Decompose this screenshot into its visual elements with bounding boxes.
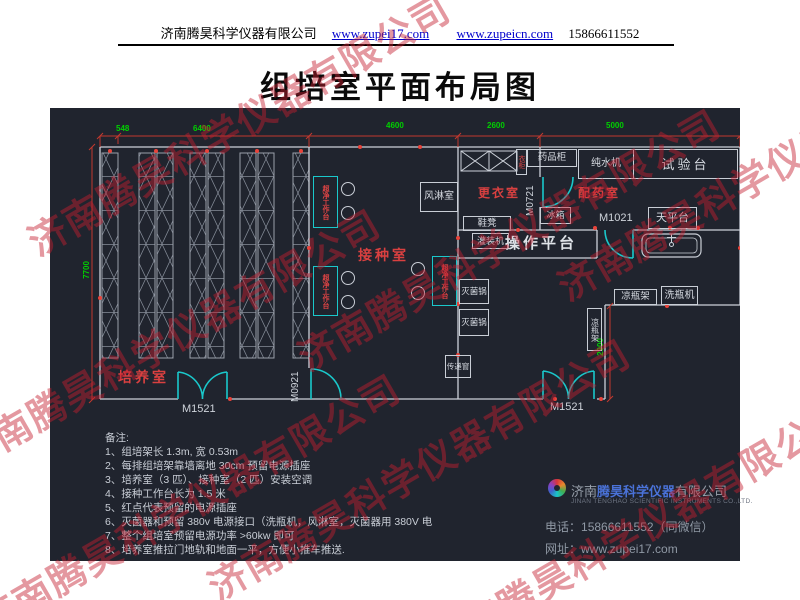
company-logo-icon [548, 479, 566, 497]
web-label: 网址： [545, 542, 581, 556]
notes-title: 备注: [105, 433, 129, 444]
door-label-m0721: M0721 [526, 174, 536, 216]
note-item-7: 7、整个组培室预留电源功率 >60kw 即可 [105, 531, 294, 542]
wardrobe-box: 衣柜 [516, 149, 527, 175]
bottle-rack-box-h: 凉瓶架 [614, 289, 657, 305]
fridge-box: 冰箱 [540, 207, 571, 224]
clean-bench-label: 超净工作台 [441, 264, 448, 299]
clean-bench-label: 超净工作台 [322, 274, 329, 309]
phone-label: 电话： [545, 520, 581, 534]
header-phone: 15866611552 [568, 26, 639, 41]
clean-bench-label: 超净工作台 [322, 185, 329, 220]
brand-suffix: 有限公司 [675, 484, 727, 499]
room-label-changing: 更衣室 [478, 187, 520, 199]
page: 济南腾昊科学仪器有限公司 www.zupei17.com www.zupeicn… [0, 0, 800, 600]
note-item-6: 6、灭菌器和预留 380v 电源接口（洗瓶机，风淋室，灭菌器用 380V 电 [105, 517, 432, 528]
web-value: www.zupei17.com [581, 542, 678, 556]
floorplan-canvas: 548 6400 4600 2600 5000 7700 2900 培养室 接种… [50, 108, 740, 561]
test-bench-label: 试验台 [633, 150, 737, 178]
bench-counter-box: 纯水机 试验台 [578, 149, 738, 179]
dim-top-2600: 2600 [487, 122, 505, 130]
stool [341, 206, 355, 220]
brand-mid: 科学仪器 [623, 484, 675, 499]
balance-table-box: 天平台 [648, 207, 697, 229]
door-m0721 [543, 177, 573, 207]
note-item-3: 3、培养室（3 匹）、接种室（2 匹）安装空调 [105, 475, 312, 486]
sink [642, 234, 701, 257]
door-m1521-wash [543, 371, 594, 399]
water-purifier-label: 纯水机 [579, 159, 633, 169]
stool [341, 271, 355, 285]
page-title: 组培室平面布局图 [0, 62, 800, 107]
clean-bench-3: 超净工作台 [432, 256, 457, 306]
faucet-icon [667, 234, 676, 247]
phone-value: 15866611552（同微信） [581, 520, 714, 534]
room-label-pharmacy: 配药室 [578, 187, 620, 199]
header-link-zupeicn[interactable]: www.zupeicn.com [456, 26, 553, 41]
stool [411, 262, 425, 276]
dim-top-548: 548 [116, 125, 129, 133]
header: 济南腾昊科学仪器有限公司 www.zupei17.com www.zupeicn… [0, 23, 800, 42]
culture-rack-shelving [102, 153, 309, 358]
sterilizer-box-1: 灭菌锅 [459, 279, 489, 304]
room-label-culture: 培养室 [118, 370, 169, 384]
stool [411, 286, 425, 300]
door-m0921 [311, 369, 341, 399]
room-label-inoculation: 接种室 [358, 248, 409, 262]
clean-bench-2: 超净工作台 [313, 266, 338, 316]
shoe-bench-box: 鞋凳 [463, 216, 511, 231]
transfer-window-box: 传递窗 [445, 355, 471, 378]
hatched-wall-blocks [461, 151, 517, 171]
note-item-4: 4、接种工作台长为 1.5 米 [105, 489, 226, 500]
note-item-5: 5、红点代表预留的电源插座 [105, 503, 237, 514]
brand-name: 腾昊 [597, 484, 623, 499]
dim-top-4600: 4600 [386, 122, 404, 130]
brand-prefix: 济南 [571, 484, 597, 499]
sterilizer-box-2: 灭菌锅 [459, 309, 489, 336]
door-label-m1521-culture: M1521 [182, 404, 216, 415]
medicine-cabinet-box: 药品柜 [527, 149, 577, 167]
footer-web-line: 网址：www.zupei17.com [545, 540, 678, 557]
stool [341, 182, 355, 196]
door-label-m1021: M1021 [599, 213, 633, 224]
door-label-m1521-wash: M1521 [550, 402, 584, 413]
door-label-m0921: M0921 [291, 360, 301, 402]
clean-bench-1: 超净工作台 [313, 176, 338, 228]
stool [341, 295, 355, 309]
filling-machine-box: 灌装机 [472, 233, 509, 249]
dim-top-5000: 5000 [606, 122, 624, 130]
door-m1521-culture [178, 372, 227, 399]
note-item-8: 8、培养室推拉门地轨和地面一平，方便小推车推送. [105, 545, 345, 556]
header-divider [118, 44, 674, 46]
header-link-zupei17[interactable]: www.zupei17.com [332, 26, 429, 41]
note-item-2: 2、每排组培架靠墙离地 30cm 预留电源插座 [105, 461, 310, 472]
dim-top-6400: 6400 [193, 125, 211, 133]
room-label-operation: 操作平台 [505, 236, 577, 251]
header-company: 济南腾昊科学仪器有限公司 [161, 26, 317, 41]
bottle-washer-box: 洗瓶机 [661, 286, 698, 305]
footer-company-name-en: JINAN TENGHAO SCIENTIFIC INSTRUMENTS CO.… [571, 498, 753, 505]
door-m1021 [605, 230, 633, 258]
note-item-1: 1、组培架长 1.3m, 宽 0.53m [105, 447, 238, 458]
air-shower-box: 风淋室 [420, 182, 458, 212]
bottle-rack-box-v: 凉瓶架 [587, 308, 602, 351]
dim-left-7700: 7700 [83, 255, 91, 285]
footer-phone-line: 电话：15866611552（同微信） [545, 518, 714, 535]
